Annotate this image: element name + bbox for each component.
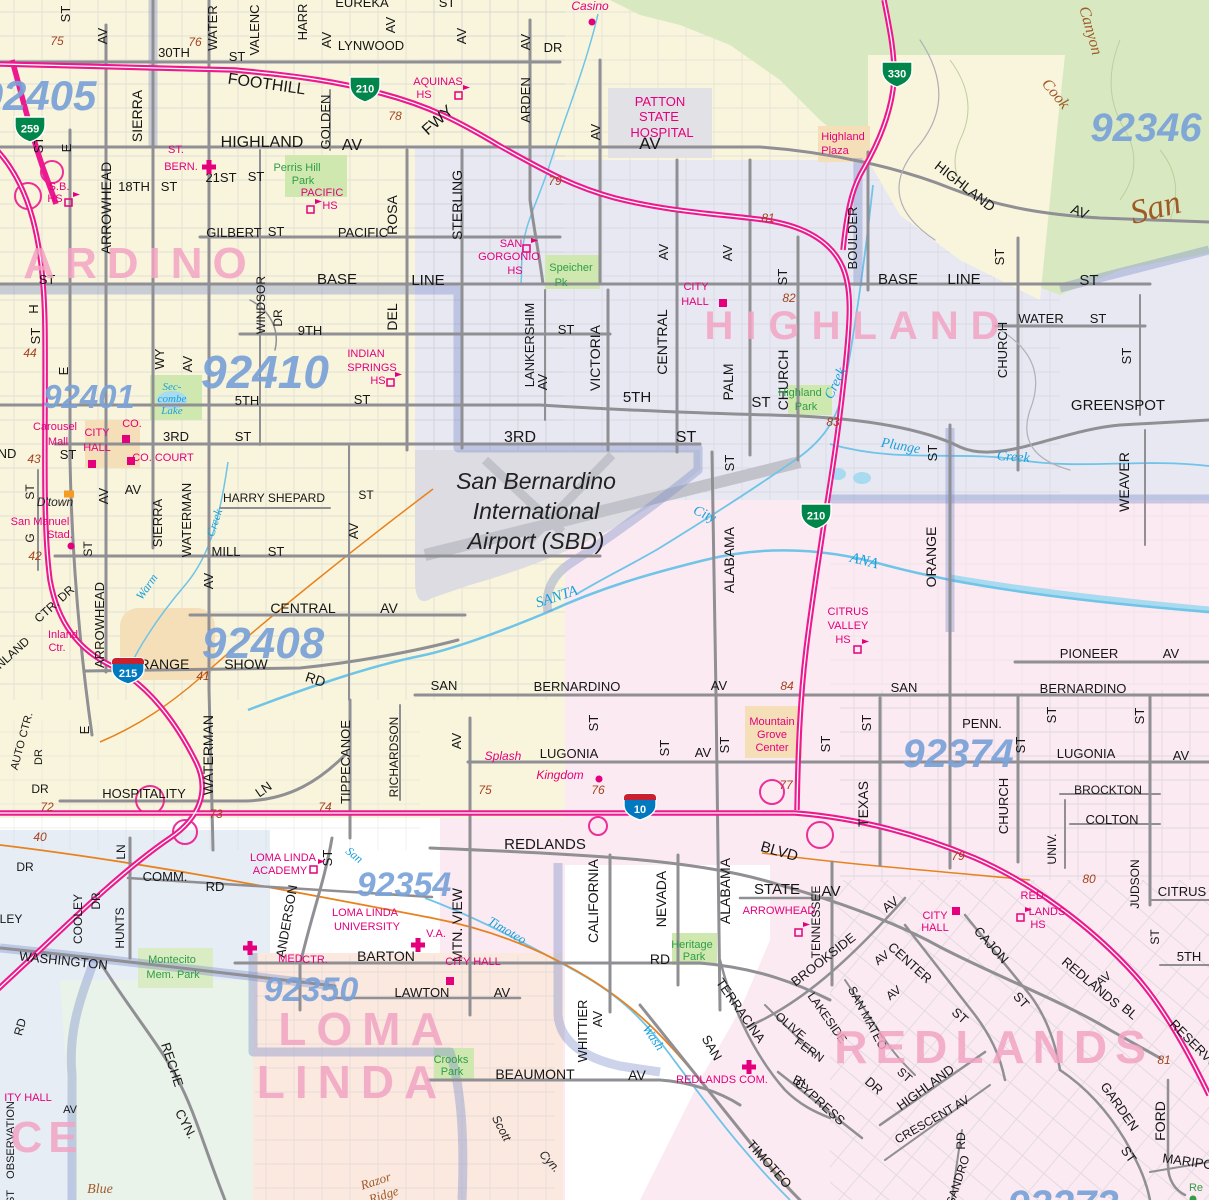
- road-label: CHURCH: [775, 350, 791, 411]
- poi-dot-icon: [68, 543, 75, 550]
- road-label: ST: [358, 488, 374, 502]
- road-label: SIERRA: [150, 498, 165, 547]
- poi-label: ACADEMY: [253, 865, 308, 877]
- poi-dot-icon: [589, 19, 596, 26]
- exit-number-label: 76: [591, 783, 605, 797]
- poi-label: Ctr.: [48, 642, 65, 654]
- road-label: TENNESSEE: [809, 886, 823, 959]
- road-label: E: [77, 725, 92, 734]
- road-label: ST: [81, 541, 95, 557]
- road-label: ST: [1119, 348, 1134, 365]
- city-name-label: LINDA: [257, 1056, 448, 1108]
- road-label: AV: [535, 373, 550, 390]
- misc-label: Airport (SBD): [466, 528, 605, 554]
- svg-text:210: 210: [807, 511, 825, 523]
- road-label: CITRUS: [1158, 884, 1207, 899]
- road-label: BARTON: [357, 948, 415, 964]
- road-label: AV: [588, 123, 603, 140]
- road-label: SAN: [891, 680, 918, 695]
- city-name-label: REDLANDS: [834, 1021, 1154, 1073]
- poi-label: Grove: [757, 729, 787, 741]
- road-label: ST: [1079, 272, 1098, 289]
- poi-label: VALLEY: [828, 620, 869, 632]
- misc-label: International: [473, 498, 600, 524]
- poi-label: ST.: [168, 144, 184, 156]
- road-label: PENN.: [962, 716, 1002, 731]
- road-label: AV: [590, 1010, 605, 1027]
- poi-label: Center: [755, 742, 788, 754]
- road-label: AV: [656, 243, 671, 260]
- road-label: AV: [383, 16, 398, 33]
- road-label: LEY: [0, 912, 22, 926]
- road-label: DR: [31, 782, 49, 796]
- poi-label: STATE: [639, 109, 679, 124]
- poi-label: SAN: [500, 238, 523, 250]
- road-label: LUGONIA: [540, 746, 599, 761]
- downtown-icon: [64, 491, 74, 498]
- road-label: HOSPITALITY: [102, 786, 186, 801]
- exit-number-label: 73: [209, 807, 223, 821]
- road-label: DR: [89, 892, 103, 910]
- exit-number-label: 74: [318, 800, 332, 814]
- road-label: RD: [206, 879, 225, 894]
- road-label: PIONEER: [1060, 646, 1119, 661]
- road-label: AV: [1163, 646, 1180, 661]
- road-label: 5TH: [1177, 949, 1202, 964]
- road-label: ST: [320, 850, 335, 867]
- poi-label: HALL: [921, 922, 949, 934]
- road-label: AV: [201, 572, 216, 589]
- road-label: ST: [23, 484, 37, 500]
- road-label: AV: [125, 482, 142, 497]
- poi-label: CITY: [922, 910, 948, 922]
- road-label: ST: [722, 455, 737, 472]
- road-label: WEAVER: [1116, 452, 1132, 512]
- road-label: AV: [180, 355, 195, 372]
- road-label: ST: [925, 445, 940, 462]
- road-label: STERLING: [449, 170, 465, 240]
- poi-label: Kingdom: [536, 768, 583, 782]
- road-label: WATER: [1018, 311, 1064, 326]
- poi-label: SPRINGS: [347, 362, 397, 374]
- road-label: ST: [657, 740, 672, 757]
- road-label: JUDSON: [1128, 859, 1142, 908]
- road-label: AV: [319, 31, 334, 48]
- exit-number-label: 43: [27, 452, 41, 466]
- map-viewport: San Bernardino / Highland / Redlands / L…: [0, 0, 1209, 1200]
- road-label: DR: [33, 749, 45, 765]
- road-label: COLTON: [1086, 812, 1139, 827]
- road-label: TIPPECANOE: [338, 720, 353, 804]
- park-label: Park: [292, 175, 315, 187]
- road-label: GOLDEN: [318, 95, 333, 150]
- city-name-label: HIGHLAND: [704, 304, 1011, 348]
- road-label: G: [23, 533, 37, 542]
- poi-label: AQUINAS: [413, 76, 463, 88]
- road-label: ORANGE: [923, 527, 939, 588]
- road-label: DEL: [384, 303, 400, 330]
- road-label: AV: [494, 985, 511, 1000]
- road-label: WATERMAN: [179, 483, 194, 557]
- road-label: ST: [1132, 708, 1147, 725]
- road-label: WY: [152, 348, 167, 369]
- road-label: ARROWHEAD: [92, 582, 107, 668]
- zip-code-label: 92350: [264, 971, 359, 1009]
- poi-label: Splash: [485, 749, 522, 763]
- city-hall-icon: [88, 460, 96, 468]
- road-label: VALENC: [247, 4, 262, 55]
- poi-label: HS: [507, 265, 522, 277]
- road-label: 9TH: [298, 323, 323, 338]
- exit-number-label: 77: [779, 778, 794, 792]
- road-label: CALIFORNIA: [585, 858, 601, 943]
- road-label: COMM.: [143, 869, 188, 884]
- svg-text:10: 10: [634, 804, 646, 816]
- road-label: RICHARDSON: [387, 717, 401, 798]
- road-label: ALABAMA: [717, 857, 733, 924]
- road-label: WATERMAN: [200, 715, 216, 795]
- road-label: LINE: [947, 271, 980, 288]
- exit-number-label: 78: [388, 109, 402, 123]
- road-label: STATE: [754, 881, 800, 898]
- road-label: ST: [717, 737, 732, 754]
- road-label: AV: [454, 27, 469, 44]
- poi-label: Carousel: [33, 421, 77, 433]
- poi-label: HS: [370, 375, 385, 387]
- poi-label: HOSPITAL: [630, 125, 693, 140]
- poi-label: CITRUS: [828, 606, 869, 618]
- park-label: Montecito: [148, 954, 196, 966]
- road-label: COOLEY: [71, 894, 85, 944]
- road-label: AV: [695, 745, 712, 760]
- city-hall-icon: [446, 977, 454, 985]
- city-hall-icon: [952, 907, 960, 915]
- poi-label: Plaza: [821, 145, 849, 157]
- road-label: E: [59, 143, 74, 152]
- poi-label: Casino: [571, 0, 609, 13]
- road-label: 3RD: [504, 429, 536, 446]
- road-label: HARRY SHEPARD: [223, 491, 325, 505]
- road-label: 5TH: [623, 389, 651, 406]
- road-label: GREENSPOT: [1071, 397, 1165, 414]
- road-label: BOULDER: [845, 207, 860, 270]
- road-label: TEXAS: [855, 781, 871, 827]
- zip-code-label: 92410: [201, 346, 329, 398]
- road-label: MTN. VIEW: [449, 887, 465, 962]
- park-label: Perris Hill: [273, 162, 320, 174]
- poi-label: CITY: [683, 281, 709, 293]
- poi-dot-icon: [596, 776, 603, 783]
- road-label: DR: [544, 40, 563, 55]
- misc-label: San Bernardino: [456, 468, 616, 494]
- park-label: Heritage: [671, 939, 713, 951]
- city-name-label: ARDINO: [23, 239, 257, 288]
- svg-text:330: 330: [888, 69, 906, 81]
- city-hall-icon: [122, 435, 130, 443]
- road-label: ST: [268, 544, 285, 559]
- poi-label: CITY: [84, 427, 110, 439]
- poi-label: HALL: [83, 442, 111, 454]
- terrain-label: Blue: [87, 1182, 113, 1197]
- road-label: SIERRA: [129, 89, 145, 142]
- exit-number-label: 75: [50, 34, 64, 48]
- water-label: Creek: [996, 449, 1031, 466]
- road-label: HUNTS: [113, 907, 127, 948]
- water-label: Sec-: [163, 381, 182, 393]
- road-label: LYNWOOD: [338, 38, 404, 53]
- road-label: BASE: [317, 271, 357, 288]
- water-label: Lake: [160, 405, 183, 417]
- zip-code-label: 92374: [902, 732, 1013, 776]
- road-label: AV: [342, 137, 362, 154]
- road-label: WATER: [205, 5, 220, 51]
- road-label: RD: [954, 1132, 968, 1150]
- road-label: ST: [229, 49, 246, 64]
- road-label: PACIFIC: [338, 225, 388, 240]
- road-label: VICTORIA: [587, 324, 603, 391]
- map-canvas[interactable]: San Bernardino / Highland / Redlands / L…: [0, 0, 1209, 1200]
- poi-label: HS: [1030, 919, 1045, 931]
- poi-label: Mall: [48, 436, 68, 448]
- road-label: BERNARDINO: [1040, 681, 1127, 696]
- road-label: ST: [586, 715, 601, 732]
- poi-label: PATTON: [635, 94, 686, 109]
- road-label: ST: [558, 322, 575, 337]
- road-label: GILBERT: [206, 225, 261, 240]
- road-label: CENTRAL: [654, 309, 670, 375]
- road-label: ST: [28, 328, 43, 345]
- road-label: ST: [992, 249, 1007, 266]
- road-label: RD: [650, 951, 670, 967]
- road-label: 3RD: [163, 429, 189, 444]
- poi-label: S.B.: [49, 181, 70, 193]
- exit-number-label: 75: [478, 783, 492, 797]
- road-label: ST: [58, 6, 73, 23]
- park-label: Park: [683, 951, 706, 963]
- poi-label: GORGONIO: [478, 251, 540, 263]
- exit-number-label: 40: [33, 830, 47, 844]
- exit-number-label: 81: [1157, 1053, 1170, 1067]
- road-label: ST: [1044, 707, 1059, 724]
- poi-label: Mountain: [749, 716, 794, 728]
- road-label: DR: [271, 309, 285, 327]
- road-label: AV: [711, 678, 728, 693]
- poi-label: INDIAN: [347, 348, 384, 360]
- road-label: ST: [161, 179, 178, 194]
- road-label: REDLANDS: [504, 836, 586, 853]
- svg-text:210: 210: [356, 84, 374, 96]
- park-label: Pk: [555, 277, 568, 289]
- road-label: AV: [449, 732, 464, 749]
- park-label: Speicher: [549, 262, 593, 274]
- road-label: ST: [60, 447, 77, 462]
- road-label: AV: [95, 27, 110, 44]
- exit-number-label: 79: [548, 174, 562, 188]
- road-label: HARR: [295, 4, 310, 41]
- exit-number-label: 80: [1082, 872, 1096, 886]
- road-label: ST: [1090, 311, 1107, 326]
- poi-label: UNIVERSITY: [334, 921, 401, 933]
- poi-label: CO. COURT: [132, 452, 194, 464]
- park-label: Mem. Park: [146, 969, 200, 981]
- water-label: combe: [158, 393, 187, 405]
- road-label: AV: [518, 33, 533, 50]
- park-label: Park: [795, 401, 818, 413]
- poi-label: HS: [47, 193, 62, 205]
- poi-label: LANDS: [1029, 906, 1066, 918]
- poi-label: Inland: [48, 629, 78, 641]
- road-label: BASE: [878, 271, 918, 288]
- road-label: AV: [380, 600, 398, 616]
- poi-label: RED-: [1021, 890, 1048, 902]
- city-hall-icon: [127, 457, 135, 465]
- city-hall-icon: [719, 299, 727, 307]
- zip-code-label: 92373: [1007, 1183, 1118, 1200]
- poi-label: BERN.: [164, 161, 198, 173]
- poi-label: CO.: [122, 418, 142, 430]
- road-label: ST: [751, 394, 770, 411]
- road-label: AV: [822, 883, 841, 900]
- poi-label: REDLANDS COM.: [676, 1074, 768, 1086]
- exit-number-label: 72: [40, 800, 54, 814]
- exit-number-label: 83: [826, 415, 840, 429]
- road-label: MILL: [212, 544, 241, 559]
- road-label: CENTRAL: [270, 600, 336, 616]
- poi-label: San Manuel: [11, 516, 70, 528]
- road-label: ST: [248, 169, 265, 184]
- poi-label: CITY HALL: [445, 956, 500, 968]
- poi-label: Stad.: [47, 529, 73, 541]
- exit-number-label: 79: [951, 849, 965, 863]
- park-label: Re: [1189, 1182, 1203, 1194]
- road-label: LINE: [411, 272, 444, 289]
- road-label: AV: [720, 244, 735, 261]
- exit-number-label: 42: [28, 549, 42, 563]
- road-label: EUREKA: [335, 0, 389, 10]
- road-label: NEVADA: [653, 870, 669, 927]
- park-label: Highland: [778, 387, 821, 399]
- road-label: ST: [818, 736, 833, 753]
- road-label: UNIV.: [1045, 834, 1059, 865]
- poi-label: CTR.: [302, 954, 328, 966]
- road-label: BEAUMONT: [495, 1066, 575, 1082]
- city-name-label: LOMA: [278, 1003, 453, 1055]
- zip-code-label: 92405: [0, 72, 97, 119]
- poi-label: LOMA LINDA: [250, 852, 317, 864]
- svg-text:259: 259: [21, 124, 39, 136]
- poi-label: HS: [322, 200, 337, 212]
- exit-number-label: 82: [782, 291, 796, 305]
- road-label: H: [26, 304, 41, 313]
- road-label: AV: [628, 1067, 646, 1083]
- exit-number-label: 76: [188, 35, 202, 49]
- road-label: E: [56, 366, 71, 375]
- road-label: SAN: [431, 678, 458, 693]
- road-label: WHITTIER: [575, 1000, 590, 1063]
- poi-label: Highland: [821, 131, 864, 143]
- road-label: 18TH: [118, 179, 150, 194]
- road-label: ST: [354, 392, 371, 407]
- road-label: LN: [114, 844, 128, 859]
- zip-code-label: 92408: [202, 619, 325, 668]
- road-label: BERNARDINO: [534, 679, 621, 694]
- road-label: ST: [439, 0, 456, 10]
- road-label: CHURCH: [996, 778, 1011, 834]
- poi-label: V.A.: [426, 928, 446, 940]
- zip-code-label: 92354: [357, 866, 452, 904]
- svg-text:215: 215: [119, 668, 137, 680]
- road-label: ST: [1148, 929, 1162, 945]
- road-label: DR: [16, 860, 34, 874]
- road-label: ST: [5, 1190, 17, 1200]
- road-label: AV: [346, 522, 361, 539]
- road-label: ST: [268, 224, 285, 239]
- exit-number-label: 84: [780, 679, 794, 693]
- road-label: ARDEN: [518, 77, 533, 123]
- exit-number-label: 41: [196, 669, 209, 683]
- road-label: ST: [775, 269, 790, 286]
- road-label: PALM: [720, 363, 736, 400]
- road-label: ST: [859, 715, 874, 732]
- road-label: 30TH: [158, 45, 190, 60]
- road-label: ALABAMA: [721, 526, 737, 593]
- road-label: BROCKTON: [1074, 783, 1142, 797]
- poi-label: HS: [416, 89, 431, 101]
- poi-label: PACIFIC: [301, 187, 344, 199]
- poi-label: HS: [835, 634, 850, 646]
- poi-label: LOMA LINDA: [332, 907, 399, 919]
- zip-code-label: 92346: [1090, 106, 1202, 150]
- road-label: LUGONIA: [1057, 746, 1116, 761]
- city-name-label: CE: [10, 1113, 83, 1162]
- road-label: ST: [235, 429, 252, 444]
- road-label: ST: [1013, 737, 1028, 754]
- road-label: ST: [676, 429, 697, 446]
- road-label: AV: [96, 487, 111, 504]
- zip-code-label: 92401: [43, 378, 135, 415]
- road-label: LAWTON: [395, 985, 450, 1000]
- exit-number-label: 44: [23, 346, 37, 360]
- road-label: ND: [0, 446, 16, 461]
- poi-label: ARROWHEAD: [743, 905, 816, 917]
- poi-label: ITY HALL: [4, 1092, 52, 1104]
- road-label: HIGHLAND: [221, 134, 304, 151]
- exit-number-label: 81: [761, 211, 774, 225]
- road-label: FORD: [1152, 1101, 1168, 1141]
- road-label: AV: [1173, 748, 1190, 763]
